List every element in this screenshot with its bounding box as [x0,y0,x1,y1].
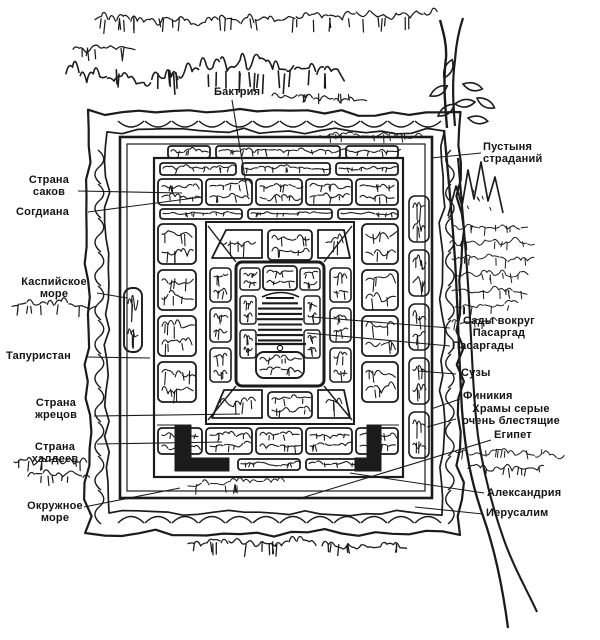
label-baktria: Бактрия [214,86,260,98]
desert-mountains [448,162,503,216]
label-temples: Храмы серые очень блестящие [455,403,567,428]
scanned-map-figure: Бактрия Пустыня страданий Страна саков С… [0,0,600,640]
label-alexandria: Александрия [487,487,561,499]
label-phoenicia: Финикия [463,390,513,402]
label-sogdiana: Согдиана [16,206,69,218]
label-egypt: Египет [494,429,532,441]
label-susa: Сузы [461,367,491,379]
label-desert: Пустыня страданий [483,141,542,166]
central-palace [240,266,320,378]
label-tapuristan: Тапуристан [6,350,71,362]
label-jerusalem: Иерусалим [486,507,549,519]
label-priests: Страна жрецов [26,397,86,422]
label-gardens: Сады вокруг Пасаргад [450,315,548,340]
label-saka: Страна саков [20,174,78,199]
label-chaldeans: Страна халдеев [24,441,86,466]
city-walls [120,137,432,498]
label-sea: Окружное море [20,500,90,525]
label-pasargadae: Пасаргады [452,340,514,352]
label-caspian: Каспийское море [12,276,96,301]
